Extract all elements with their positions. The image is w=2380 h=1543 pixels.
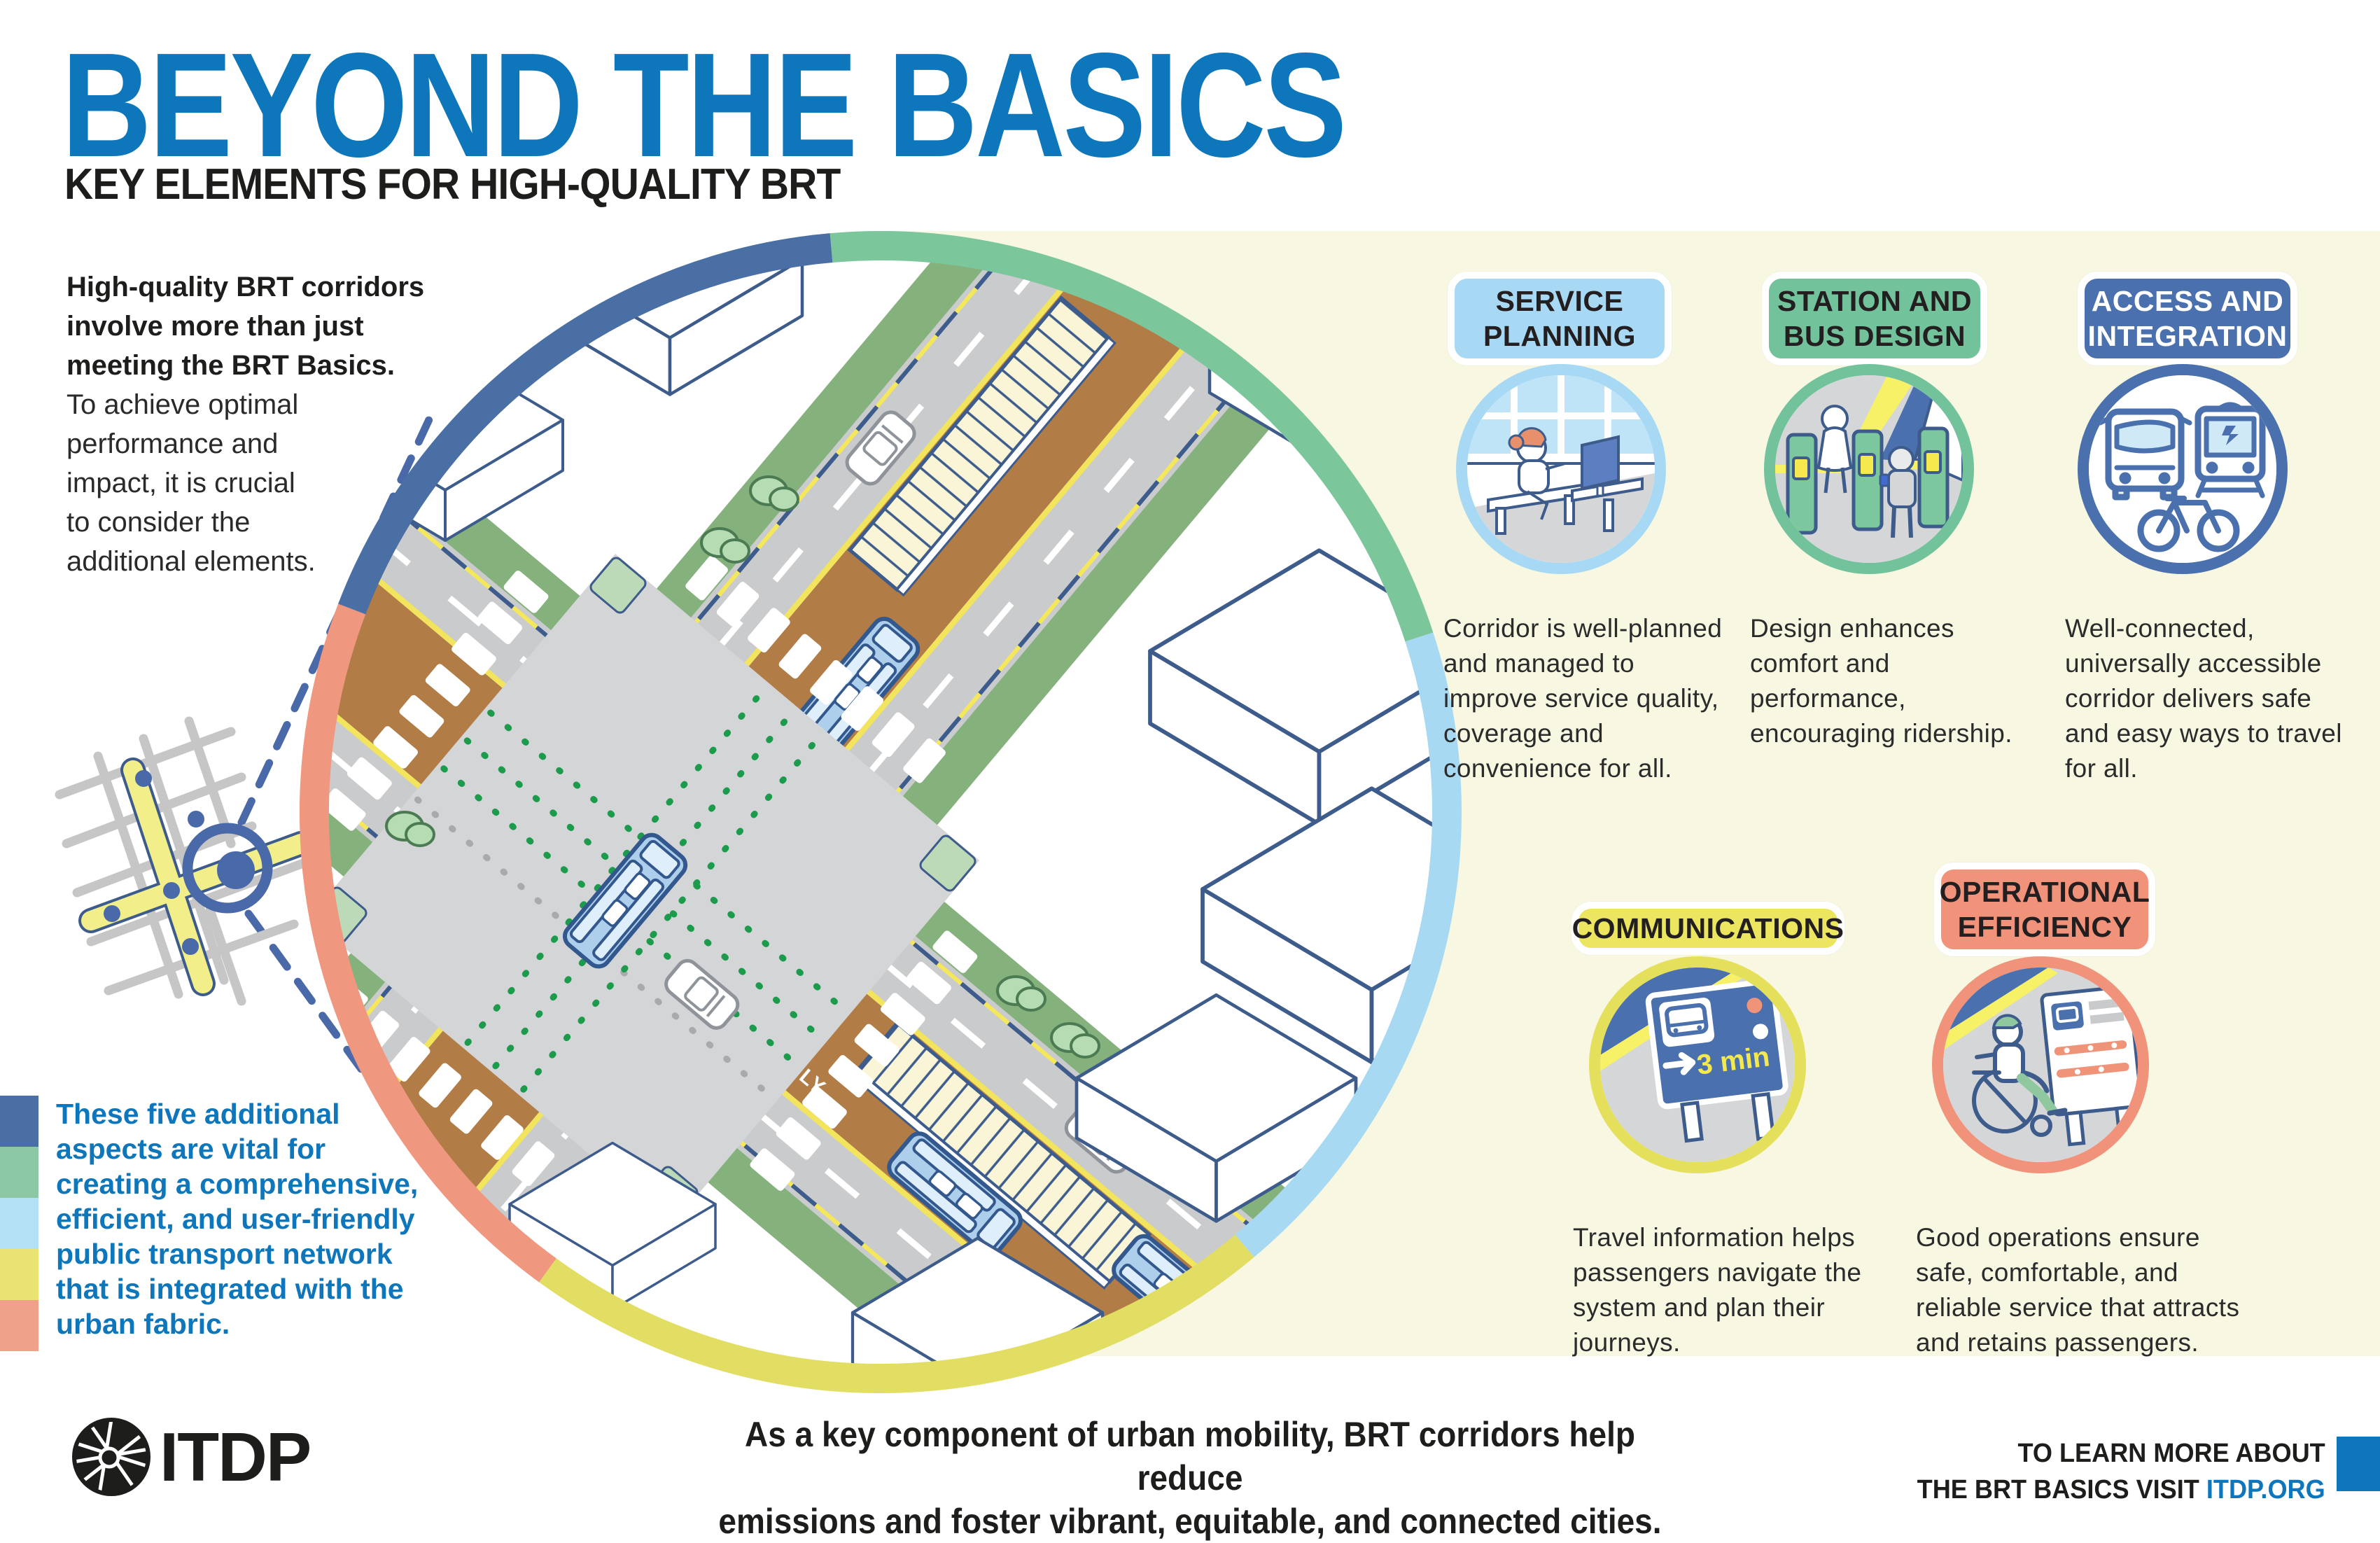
illustration-service-planning	[1456, 364, 1666, 574]
badge-label: SERVICE	[1496, 284, 1624, 319]
itdp-wheel-icon	[70, 1416, 153, 1498]
legend-line: public transport network	[56, 1236, 418, 1271]
badge-communications: COMMUNICATIONS	[1571, 902, 1844, 955]
legend-line: that is integrated with the	[56, 1271, 418, 1306]
legend-line: urban fabric.	[56, 1306, 418, 1341]
description-station-bus-design: Design enhances comfort and performance,…	[1750, 611, 2037, 751]
badge-label: ACCESS AND	[2092, 284, 2284, 319]
operations-icon	[1943, 968, 2138, 1162]
illustration-communications: 3 min	[1589, 956, 1806, 1173]
badge-station-bus-design: STATION AND BUS DESIGN	[1762, 272, 1987, 365]
legend-chip-salmon	[0, 1300, 38, 1351]
legend-line: efficient, and user-friendly	[56, 1201, 418, 1236]
itdp-logo: ITDP	[70, 1416, 310, 1498]
fare-gate-icon	[1788, 428, 1947, 533]
badge-label: COMMUNICATIONS	[1572, 911, 1844, 946]
legend-chip-green	[0, 1147, 38, 1198]
description-operational-efficiency: Good operations ensure safe, comfortable…	[1916, 1220, 2245, 1360]
badge-service-planning: SERVICE PLANNING	[1448, 272, 1672, 365]
badge-label: STATION AND	[1777, 284, 1972, 319]
statement-line: emissions and foster vibrant, equitable,…	[707, 1500, 1673, 1543]
legend-chip-lightblue	[0, 1198, 38, 1249]
description-service-planning: Corridor is well-planned and managed to …	[1443, 611, 1723, 786]
badge-label: PLANNING	[1483, 319, 1636, 354]
legend-chip-yellow	[0, 1249, 38, 1300]
corner-accent-square	[2337, 1437, 2380, 1491]
fare-gates-icon	[1775, 375, 1963, 563]
brt-corridor-illustration: BUS ONLY	[300, 231, 1462, 1393]
description-communications: Travel information helps passengers navi…	[1573, 1220, 1867, 1360]
badge-operational-efficiency: OPERATIONAL EFFICIENCY	[1934, 863, 2155, 956]
train-icon	[2198, 405, 2262, 496]
itdp-org-link[interactable]: ITDP.ORG	[2206, 1475, 2325, 1504]
legend-chip-blue	[0, 1096, 38, 1147]
itdp-logo-text: ITDP	[160, 1418, 310, 1497]
legend-line: These five additional	[56, 1096, 418, 1131]
legend-statement: These five additional aspects are vital …	[56, 1096, 418, 1341]
illustration-access-integration	[2078, 364, 2288, 574]
learn-more-line1: TO LEARN MORE ABOUT	[1917, 1435, 2325, 1472]
description-access-integration: Well-connected, universally accessible c…	[2065, 611, 2359, 786]
badge-label: OPERATIONAL	[1940, 874, 2150, 909]
badge-access-integration: ACCESS AND INTEGRATION	[2078, 272, 2297, 365]
illustration-operational-efficiency	[1932, 956, 2149, 1173]
learn-more: TO LEARN MORE ABOUT THE BRT BASICS VISIT…	[1917, 1435, 2325, 1508]
legend-line: creating a comprehensive,	[56, 1166, 418, 1201]
learn-more-prefix: THE BRT BASICS VISIT	[1917, 1475, 2206, 1504]
modes-icon	[2089, 375, 2276, 563]
legend-line: aspects are vital for	[56, 1131, 418, 1166]
statement-line: As a key component of urban mobility, BR…	[707, 1413, 1673, 1500]
service-planning-icon	[1467, 375, 1655, 563]
illustration-station-bus-design	[1764, 364, 1974, 574]
badge-label: INTEGRATION	[2088, 319, 2288, 354]
badge-label: EFFICIENCY	[1958, 909, 2132, 944]
arrival-sign-icon: 3 min	[1600, 968, 1795, 1162]
learn-more-line2: THE BRT BASICS VISIT ITDP.ORG	[1917, 1472, 2325, 1508]
footer-statement: As a key component of urban mobility, BR…	[707, 1413, 1673, 1543]
badge-label: BUS DESIGN	[1784, 319, 1966, 354]
